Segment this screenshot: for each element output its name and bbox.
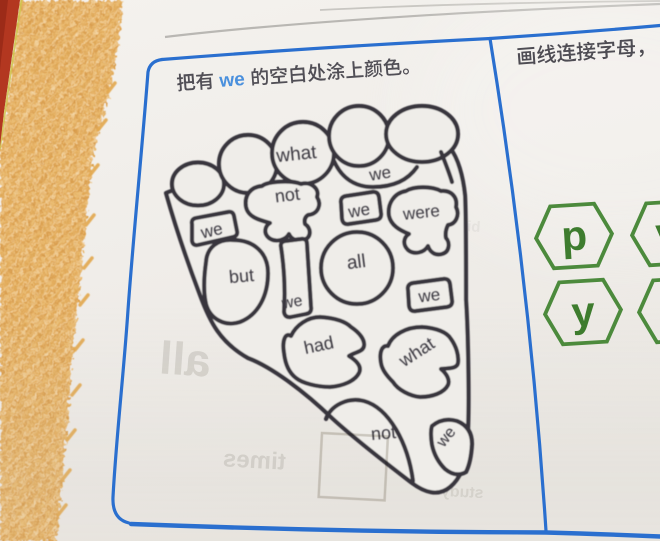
svg-text:not: not [370,422,397,444]
svg-text:what: what [274,142,318,167]
svg-text:we: we [346,199,371,221]
svg-text:p: p [560,211,588,259]
svg-text:but: but [228,265,255,287]
svg-text:we: we [416,285,441,307]
svg-text:all: all [346,251,367,274]
svg-text:we: we [367,162,392,184]
svg-text:not: not [274,184,301,207]
svg-text:were: were [401,201,441,224]
svg-text:we: we [218,69,246,92]
svg-text:y: y [570,287,597,335]
